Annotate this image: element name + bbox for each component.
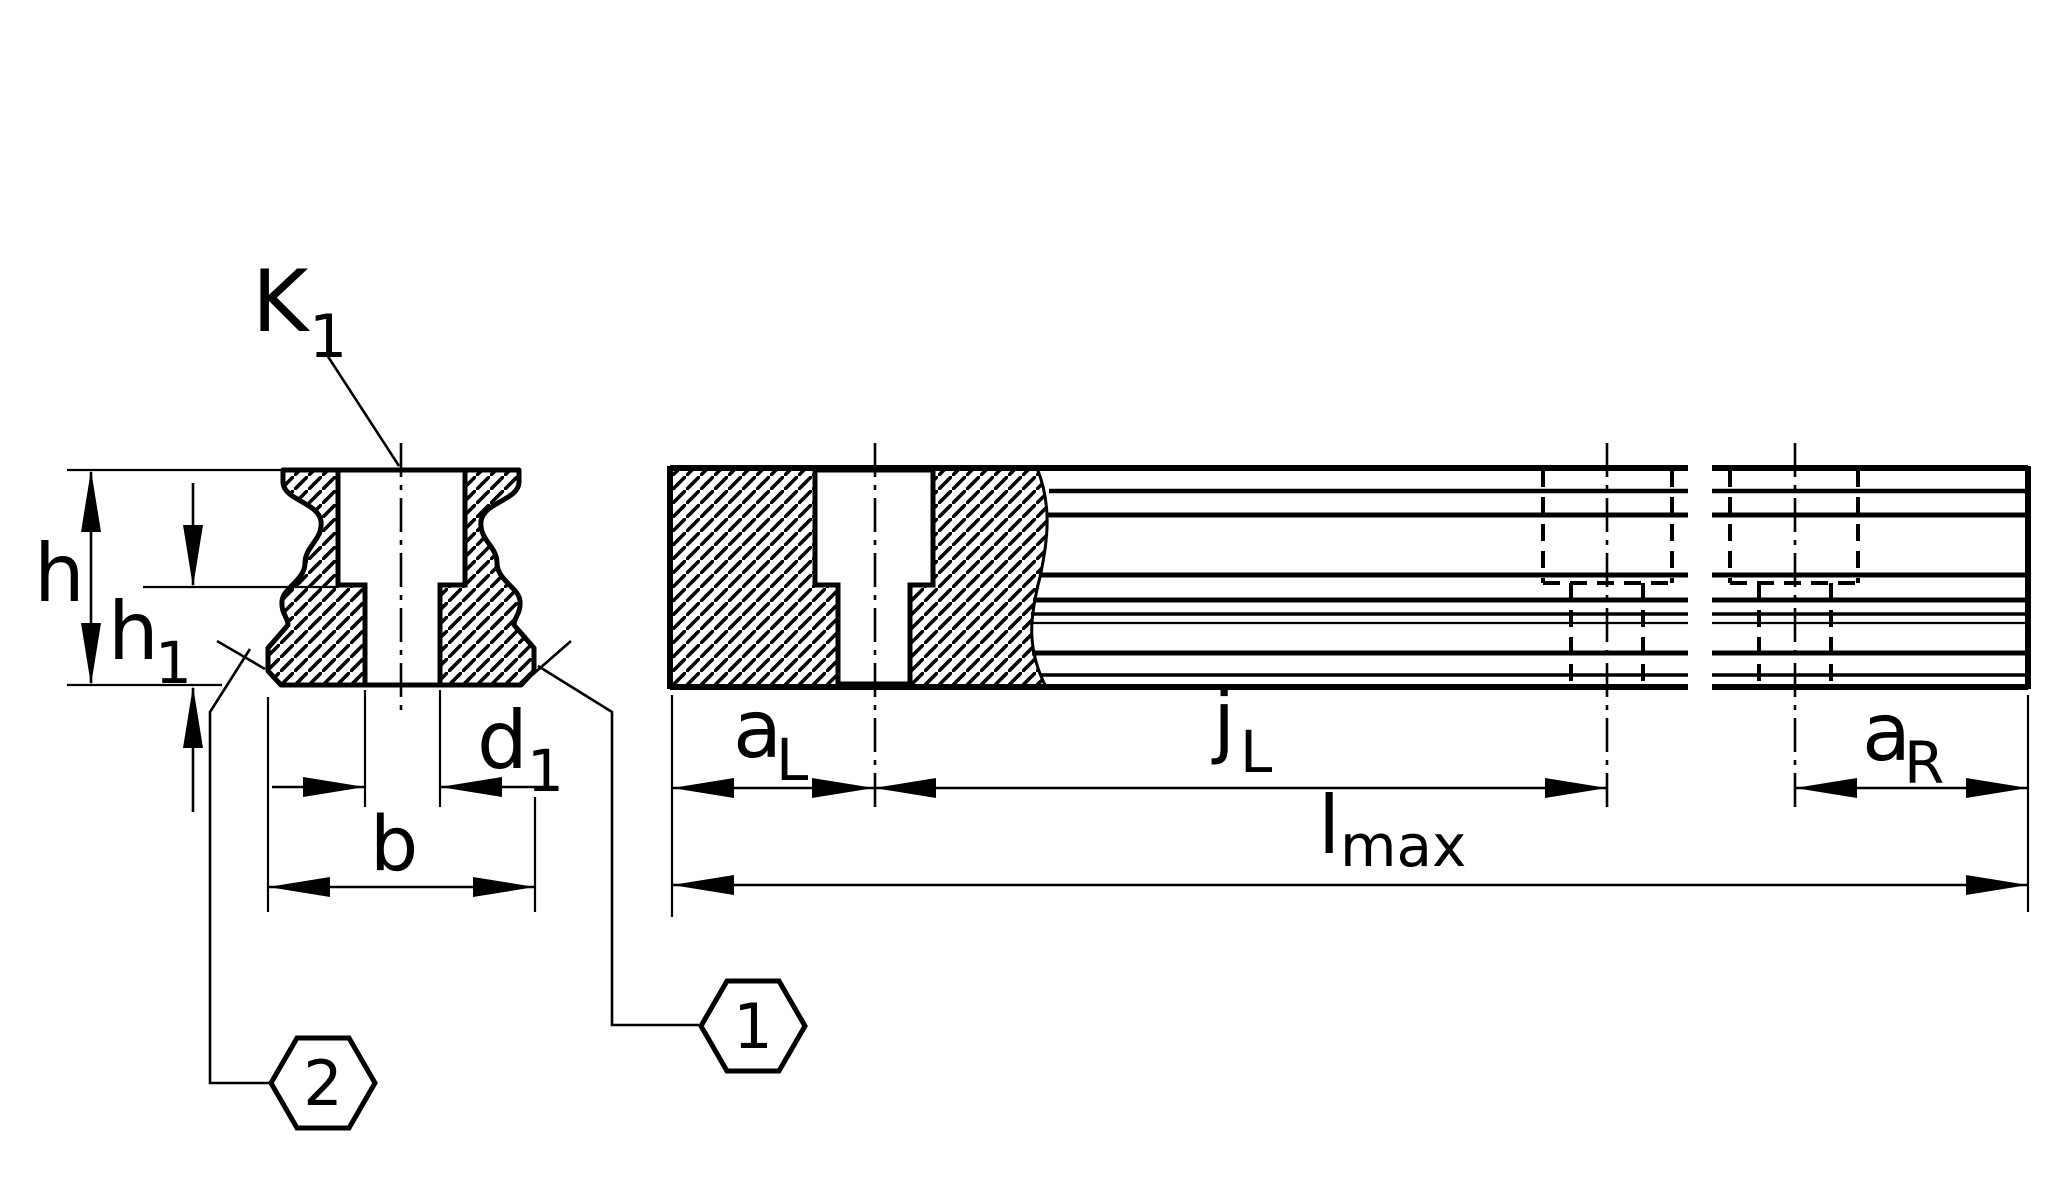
label-k1-group: K 1 — [252, 252, 399, 466]
svg-text:L: L — [776, 726, 808, 794]
dimension-a-r: a R — [1795, 686, 2028, 798]
cross-section-view — [268, 443, 534, 718]
label-h1: h — [108, 585, 159, 678]
svg-text:1: 1 — [527, 737, 564, 805]
label-d1: d — [477, 694, 528, 787]
label-a-l: a — [733, 683, 782, 776]
callout-2-leader — [210, 649, 269, 1083]
label-j-l: j — [1211, 674, 1235, 767]
dimension-a-l: a L — [672, 683, 874, 798]
drawing-canvas: h h 1 d 1 b K 1 — [0, 0, 2070, 1200]
label-b: b — [370, 799, 418, 888]
callout-1-leader — [538, 666, 699, 1025]
side-view — [670, 443, 2028, 813]
label-l-max: l — [1318, 779, 1340, 872]
label-h: h — [34, 527, 85, 620]
technical-drawing: h h 1 d 1 b K 1 — [0, 0, 2070, 1200]
svg-text:1: 1 — [309, 302, 347, 372]
dimension-d1: d 1 — [272, 690, 564, 807]
callout-2-number: 2 — [303, 1047, 342, 1120]
svg-text:L: L — [1240, 718, 1272, 786]
dimension-j-l: j L — [874, 674, 1607, 798]
svg-text:max: max — [1340, 812, 1466, 880]
rail-profile-lines-left — [1030, 491, 1688, 675]
label-k1: K — [252, 252, 311, 352]
svg-text:1: 1 — [155, 629, 192, 697]
svg-text:R: R — [1904, 729, 1944, 797]
callout-1-number: 1 — [733, 990, 772, 1063]
